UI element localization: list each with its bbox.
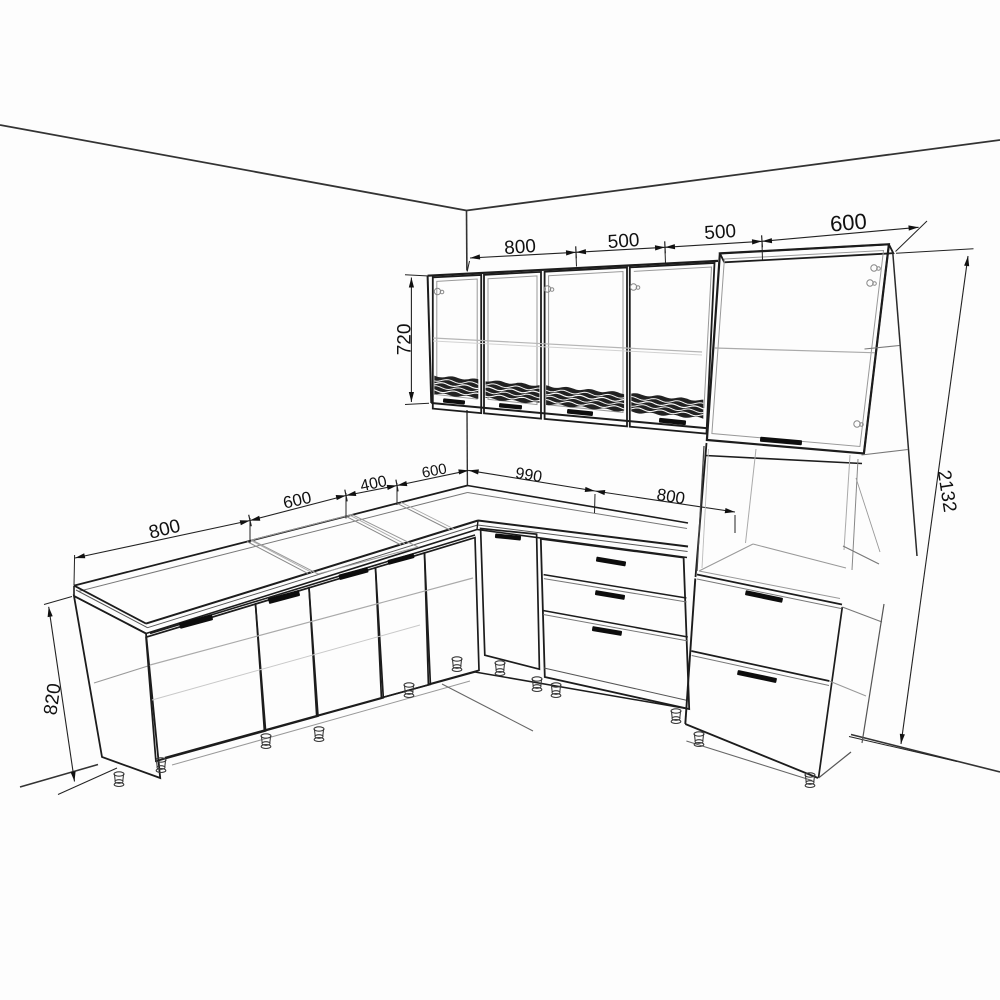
svg-text:500: 500 (607, 230, 640, 253)
svg-text:800: 800 (504, 236, 537, 259)
svg-text:720: 720 (395, 324, 416, 356)
svg-text:600: 600 (829, 208, 868, 236)
svg-text:820: 820 (40, 682, 65, 716)
svg-text:500: 500 (704, 221, 737, 244)
